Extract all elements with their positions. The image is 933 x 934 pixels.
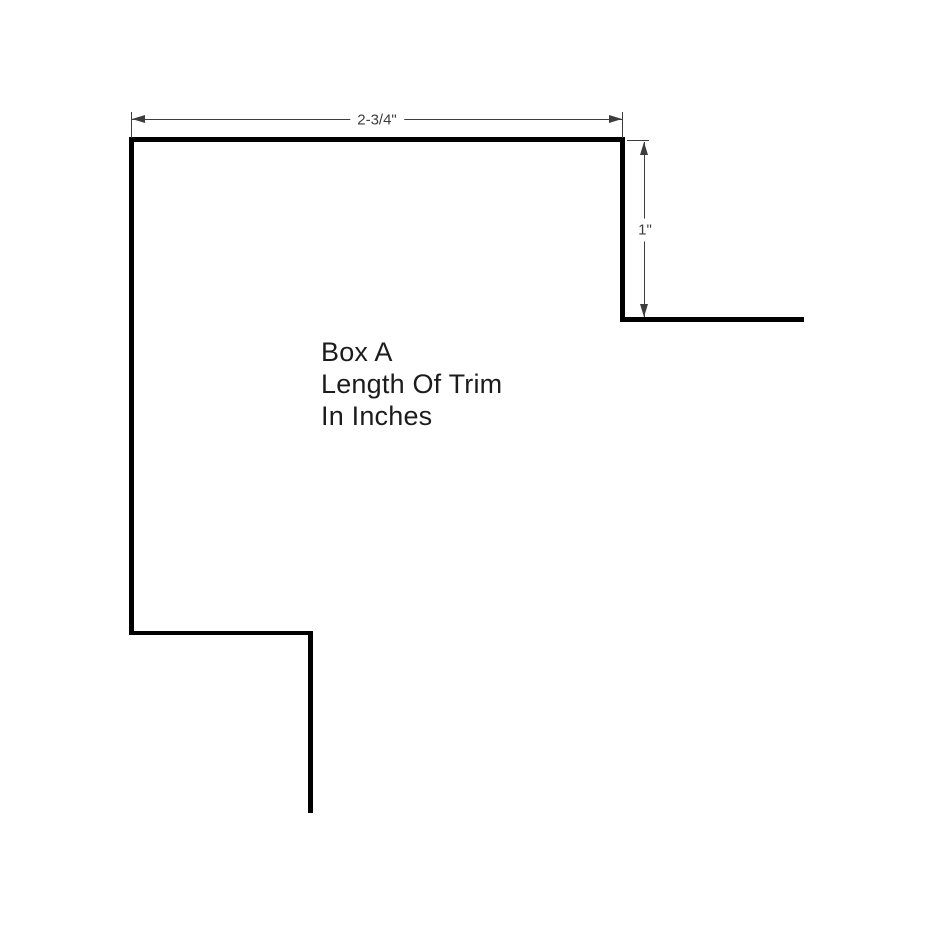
outline-top-edge	[129, 137, 625, 142]
depth-dim-extension-line-top	[627, 140, 649, 141]
depth-dim-arrow-down-icon	[640, 304, 648, 317]
outline-bottom-notch-top-edge	[129, 631, 312, 635]
drawing-note: Box A Length Of Trim In Inches	[321, 336, 502, 432]
width-dim-arrow-right-icon	[609, 115, 622, 123]
outline-right-notch-bottom-edge	[620, 317, 804, 322]
note-line-1: Box A	[321, 336, 502, 368]
depth-dim-arrow-up-icon	[640, 142, 648, 155]
note-line-3: In Inches	[321, 400, 502, 432]
technical-drawing-canvas: 2-3/4" 1" Box A Length Of Trim In Inches	[0, 0, 933, 934]
note-line-2: Length Of Trim	[321, 368, 502, 400]
outline-left-edge	[129, 137, 134, 635]
width-dim-extension-line-right	[622, 112, 623, 138]
depth-dim-label: 1"	[636, 219, 654, 242]
width-dim-label: 2-3/4"	[350, 113, 404, 128]
outline-right-notch-vertical-edge	[620, 137, 625, 322]
outline-bottom-notch-vertical-edge	[308, 631, 313, 813]
width-dim-arrow-left-icon	[132, 115, 145, 123]
